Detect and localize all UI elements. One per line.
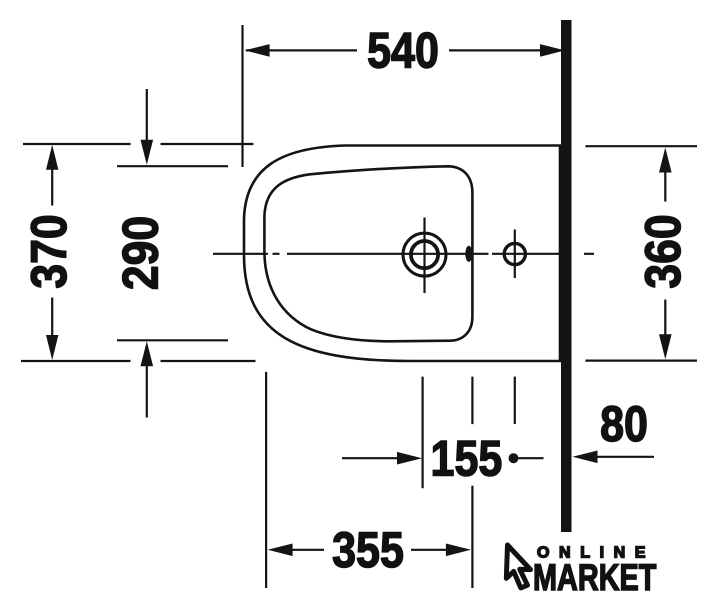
svg-text:290: 290: [113, 216, 169, 290]
svg-text:355: 355: [332, 522, 404, 578]
svg-text:80: 80: [600, 396, 648, 452]
svg-text:MARKET: MARKET: [533, 558, 656, 599]
svg-text:155: 155: [431, 430, 503, 486]
svg-text:360: 360: [636, 214, 692, 288]
svg-text:540: 540: [367, 23, 439, 79]
svg-text:370: 370: [22, 214, 78, 288]
